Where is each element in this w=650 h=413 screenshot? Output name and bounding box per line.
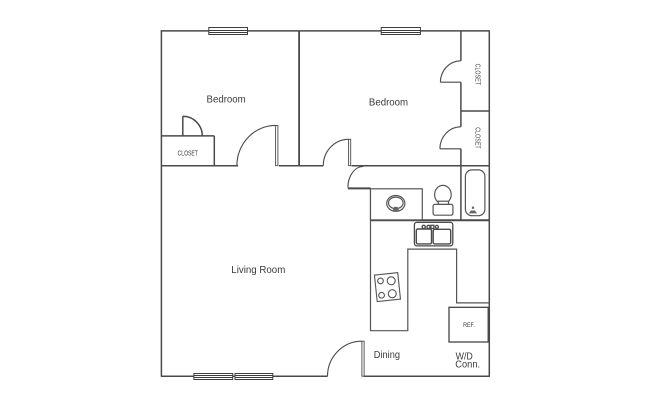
svg-text:Bedroom: Bedroom <box>369 97 408 108</box>
svg-text:Bedroom: Bedroom <box>207 95 246 106</box>
svg-text:Living Room: Living Room <box>231 265 285 276</box>
svg-text:CLOSET: CLOSET <box>474 64 483 86</box>
svg-text:CLOSET: CLOSET <box>474 127 483 149</box>
svg-text:CLOSET: CLOSET <box>178 148 199 157</box>
svg-text:REF.: REF. <box>463 322 475 329</box>
svg-text:Dining: Dining <box>374 350 400 361</box>
svg-text:Conn.: Conn. <box>455 359 480 370</box>
